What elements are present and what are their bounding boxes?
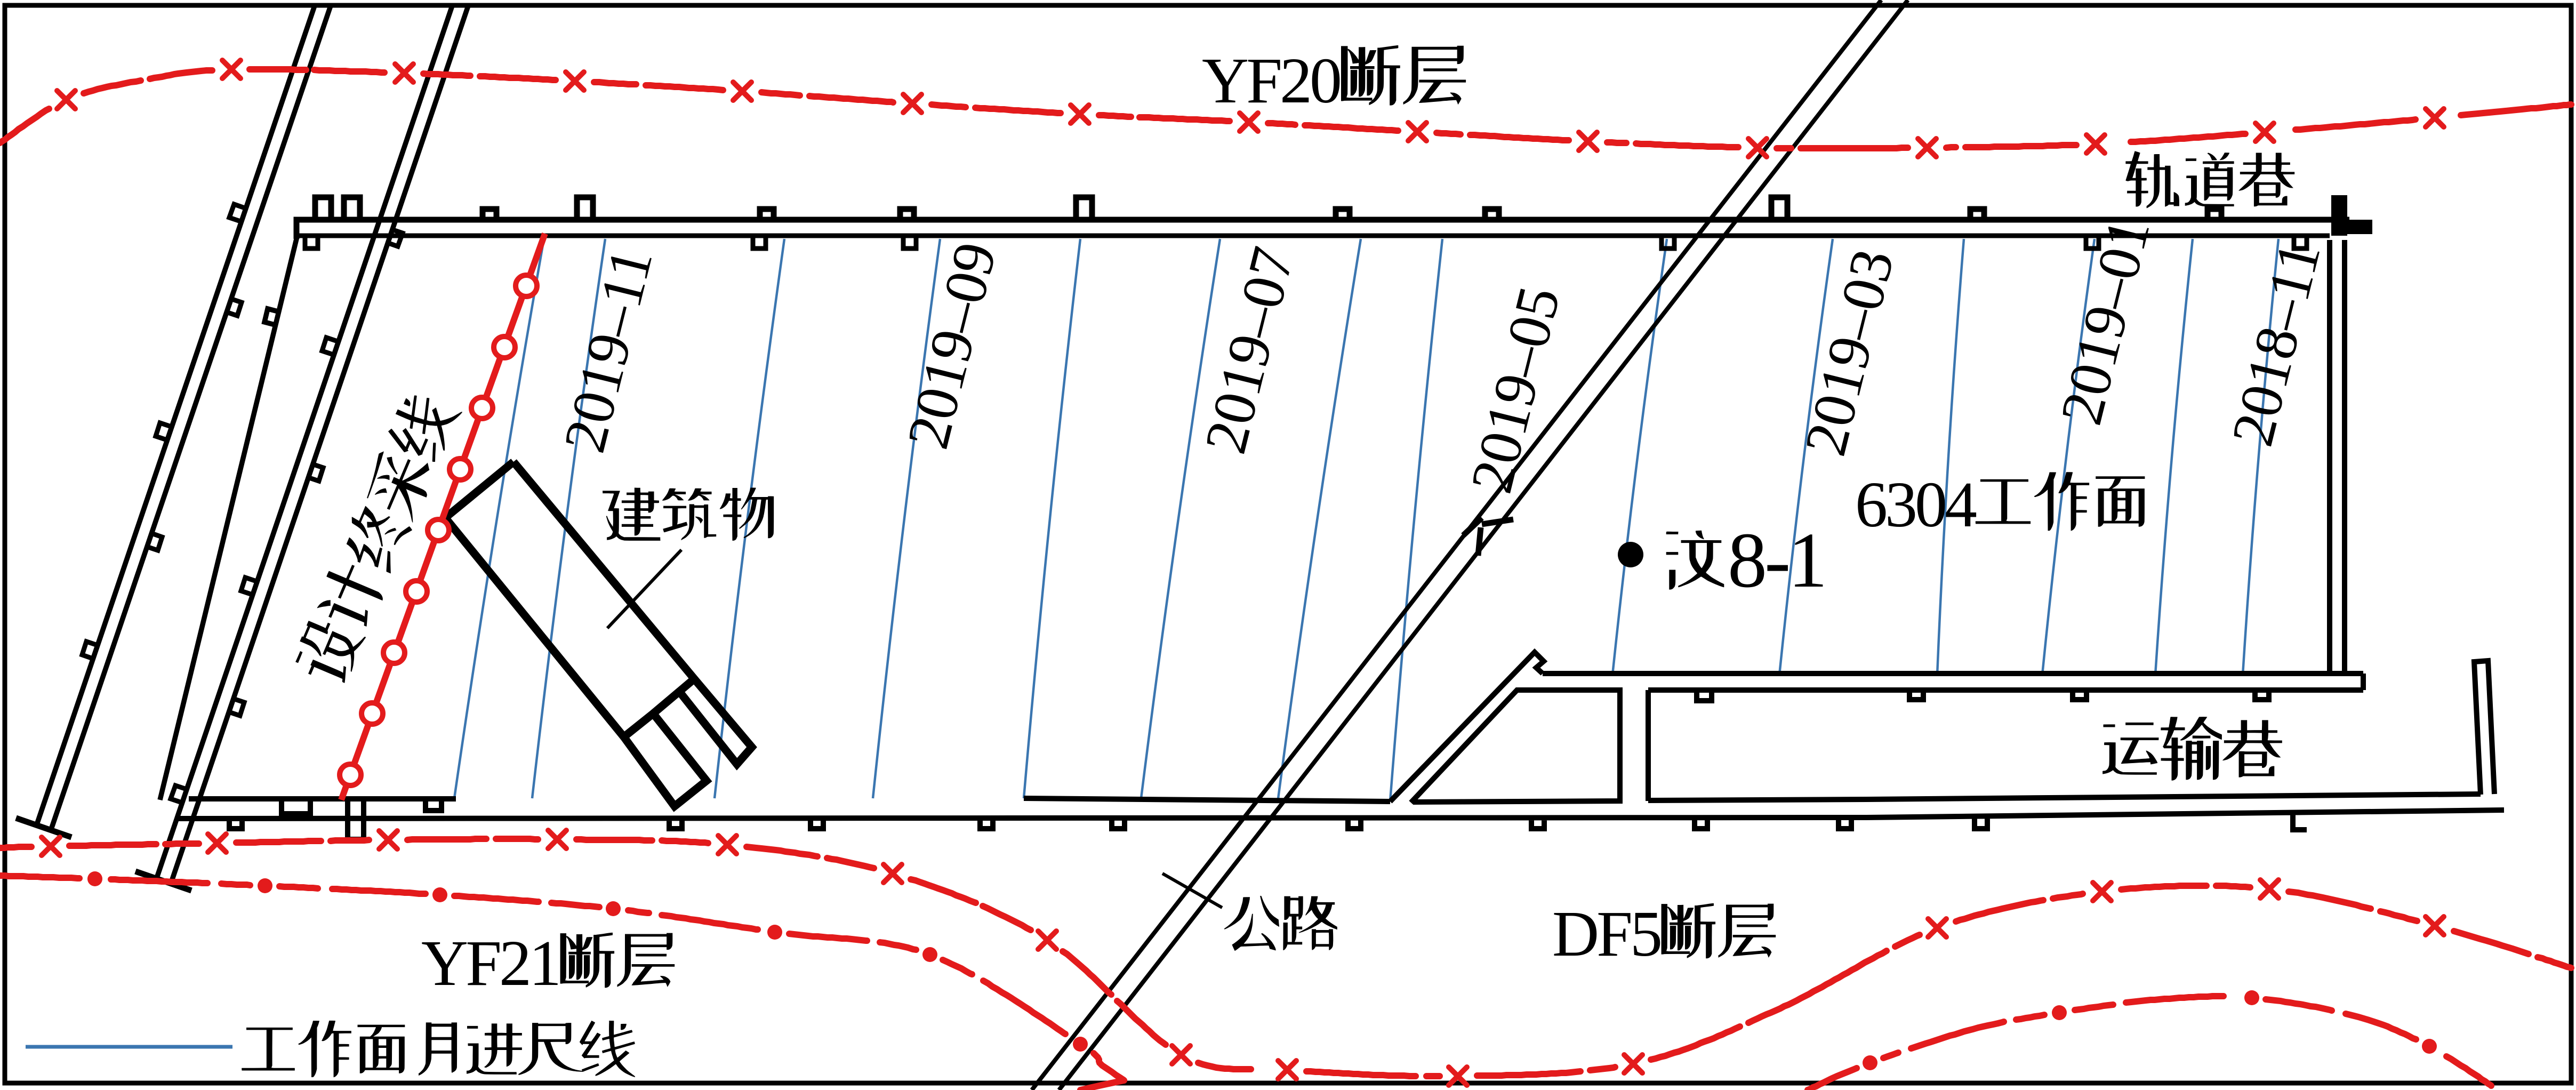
- svg-text:6304: 6304: [1855, 469, 1977, 541]
- svg-text:YF21: YF21: [421, 927, 559, 999]
- svg-text:8-1: 8-1: [1728, 517, 1825, 604]
- svg-text:DF5: DF5: [1552, 898, 1660, 970]
- svg-text:YF20: YF20: [1202, 45, 1340, 117]
